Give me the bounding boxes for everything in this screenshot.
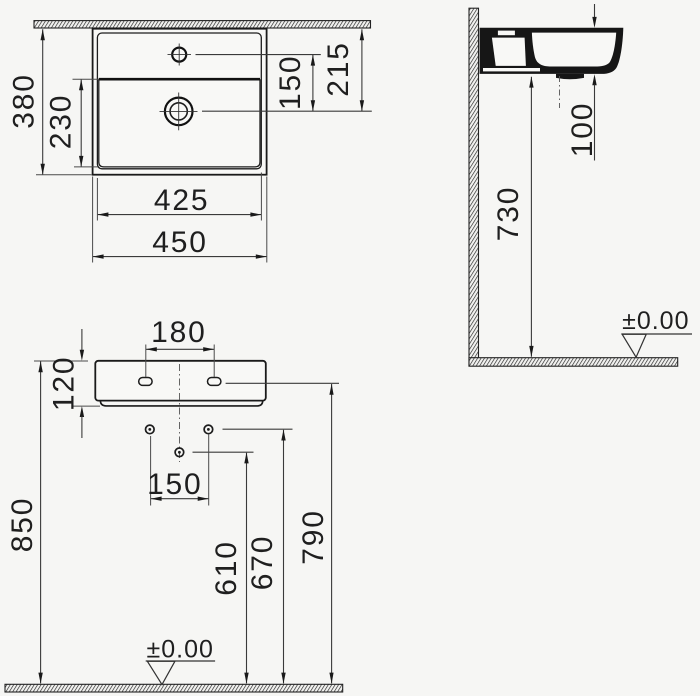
svg-text:730: 730 (492, 186, 525, 241)
svg-text:610: 610 (210, 540, 243, 595)
svg-text:850: 850 (6, 497, 39, 552)
svg-text:±0.00: ±0.00 (622, 307, 689, 335)
svg-text:120: 120 (48, 356, 81, 411)
svg-text:380: 380 (8, 73, 41, 128)
svg-text:100: 100 (566, 102, 599, 157)
svg-text:450: 450 (152, 226, 207, 259)
svg-text:150: 150 (274, 55, 307, 110)
svg-text:230: 230 (45, 94, 78, 149)
svg-text:790: 790 (297, 509, 330, 564)
svg-text:180: 180 (151, 316, 206, 349)
svg-text:670: 670 (246, 535, 279, 590)
svg-text:215: 215 (322, 41, 355, 96)
svg-text:150: 150 (147, 468, 202, 501)
svg-text:425: 425 (154, 184, 209, 217)
svg-text:±0.00: ±0.00 (147, 636, 214, 664)
